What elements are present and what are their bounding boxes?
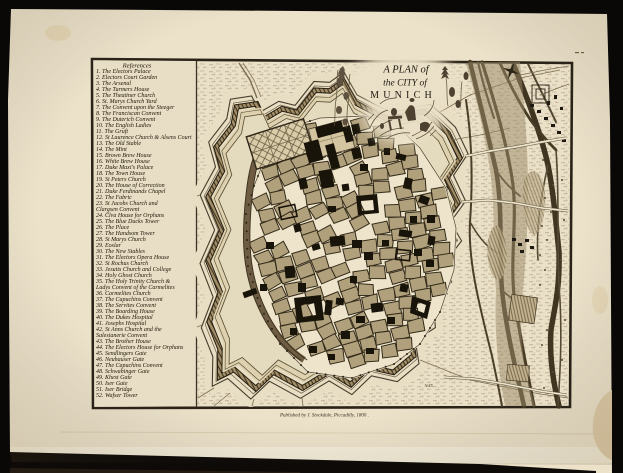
svg-text:24. Clva House for Orphans: 24. Clva House for Orphans [96,212,165,219]
svg-text:Published by J. Stockdale, Pic: Published by J. Stockdale, Piccadilly, 1… [279,414,369,419]
svg-text:40. The Dukes Hospital: 40. The Dukes Hospital [96,314,153,321]
svg-text:43. The Brother House: 43. The Brother House [96,338,151,345]
svg-text:47. The Capuchins Convent: 47. The Capuchins Convent [96,362,163,369]
svg-text:Ladys Convent of the Carmelite: Ladys Convent of the Carmelites [95,284,175,291]
svg-text:45. Sendlingers Gate: 45. Sendlingers Gate [96,350,147,357]
svg-text:44. The Electors House for Orp: 44. The Electors House for Orphans [96,344,184,351]
svg-text:A PLAN of: A PLAN of [382,65,430,76]
svg-text:41. Josephs Hospital: 41. Josephs Hospital [96,320,146,327]
svg-text:46. Neuhauser Gate: 46. Neuhauser Gate [96,356,144,363]
svg-text:49. Khest Gate: 49. Khest Gate [96,374,132,381]
svg-text:14. The Mint: 14. The Mint [96,146,127,153]
svg-text:48. Schwabinger Gate: 48. Schwabinger Gate [96,368,150,375]
svg-text:52. Wafser Tower: 52. Wafser Tower [96,392,138,399]
svg-text:MUNICH: MUNICH [370,90,436,101]
svg-text:20. The House of Correction: 20. The House of Correction [96,182,165,189]
svg-text:4. The Turmers House: 4. The Turmers House [96,86,150,93]
svg-text:11. The Gruft: 11. The Gruft [96,128,128,135]
svg-text:V.45: V.45 [425,383,434,388]
svg-text:34. Holy Ghost Church: 34. Holy Ghost Church [95,272,152,279]
svg-text:the CITY of: the CITY of [383,78,428,89]
svg-text:42. St Anns Church and the: 42. St Anns Church and the [96,326,162,333]
